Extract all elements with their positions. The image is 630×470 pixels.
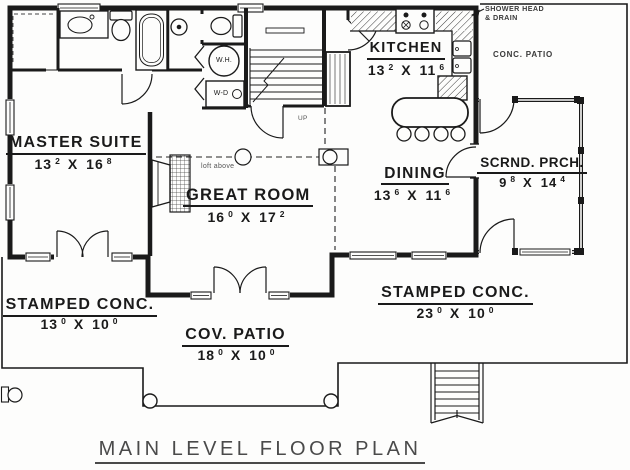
refrigerator-icon	[438, 76, 467, 100]
area-label-stamped-conc-left: STAMPED CONC.	[2, 296, 158, 317]
area-label-conc-patio: CONC. PATIO	[493, 51, 553, 60]
room-label-kitchen: KITCHEN	[364, 41, 448, 60]
vanity-sink-icon	[60, 11, 108, 38]
patio-posts	[2, 387, 339, 408]
loft-above-note: loft above	[201, 163, 234, 171]
room-dim-master-suite: 132X168	[10, 157, 136, 172]
shower-head-note-line1: SHOWER HEAD	[485, 4, 544, 13]
room-dim-screened-porch: 98X144	[488, 175, 576, 190]
area-dim-stamped-conc-left: 130X100	[20, 317, 138, 332]
shower-head-icon	[171, 19, 187, 35]
floor-plan-drawing	[0, 0, 630, 470]
shower-head-note-line2: & DRAIN	[485, 13, 544, 22]
door	[480, 99, 514, 133]
room-dim-dining: 136X116	[360, 188, 464, 203]
powder-toilet-icon	[211, 15, 242, 37]
water-heater-label: W.H.	[210, 57, 238, 65]
room-dim-kitchen: 132X116	[350, 63, 462, 78]
room-dim-great-room: 160X172	[193, 210, 299, 225]
room-label-dining: DINING	[379, 165, 451, 185]
door	[480, 219, 514, 253]
area-label-stamped-conc-right: STAMPED CONC.	[377, 284, 534, 305]
kitchen-island	[392, 98, 468, 127]
stove-icon	[396, 9, 434, 33]
exterior-stairs	[431, 363, 483, 423]
shower-head-note: SHOWER HEAD & DRAIN	[485, 4, 544, 23]
page-title: MAIN LEVEL FLOOR PLAN	[92, 438, 428, 464]
washer-dryer-label: W-D	[207, 90, 235, 98]
room-label-screened-porch: SCRND. PRCH.	[477, 156, 587, 174]
bathtub-icon	[136, 10, 167, 70]
toilet-icon	[110, 11, 132, 41]
up-label: UP	[298, 115, 308, 122]
room-label-great-room: GREAT ROOM	[183, 186, 308, 207]
floor-plan: MASTER SUITE 132X168 GREAT ROOM 160X172 …	[0, 0, 630, 470]
area-dim-stamped-conc-right: 230X100	[396, 306, 514, 321]
area-dim-cov-patio: 180X100	[183, 348, 289, 363]
area-label-cov-patio: COV. PATIO	[179, 326, 292, 347]
room-label-master-suite: MASTER SUITE	[6, 134, 142, 155]
pantry-shelves	[326, 52, 350, 106]
